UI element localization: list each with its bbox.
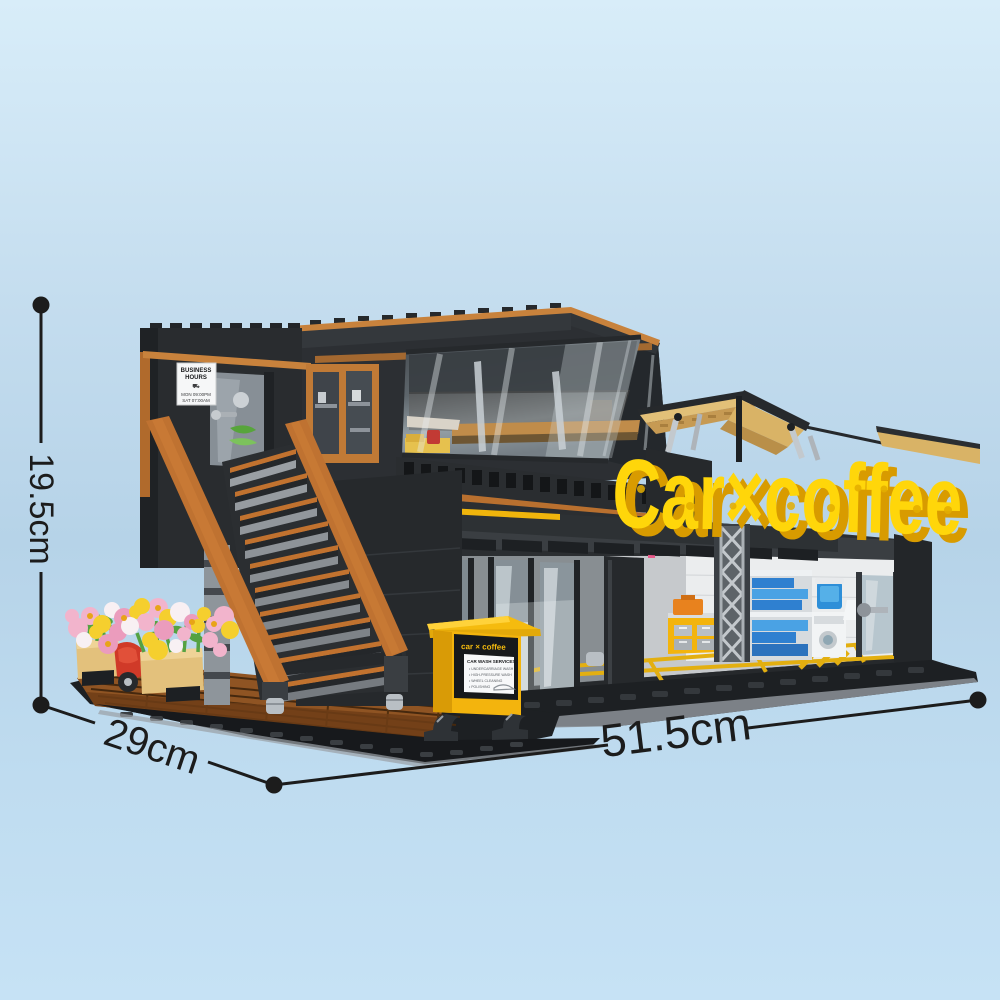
svg-text:Car×coffee: Car×coffee <box>611 438 963 555</box>
svg-text:⛟: ⛟ <box>192 384 200 390</box>
svg-text:HOURS: HOURS <box>185 375 207 381</box>
svg-text:• UNDERCARRIAGE WASH: • UNDERCARRIAGE WASH <box>469 667 514 671</box>
svg-text:BUSINESS: BUSINESS <box>181 368 212 374</box>
svg-text:• POLISHING: • POLISHING <box>469 685 491 689</box>
svg-text:19.5cm: 19.5cm <box>22 453 60 565</box>
svg-text:car × coffee: car × coffee <box>461 642 506 652</box>
svg-text:• WHEEL CLEANING: • WHEEL CLEANING <box>469 679 503 683</box>
svg-text:SAT 07:00AM: SAT 07:00AM <box>182 398 210 403</box>
svg-text:• HIGH-PRESSURE WASH: • HIGH-PRESSURE WASH <box>469 673 512 677</box>
svg-text:CAR WASH SERVICES: CAR WASH SERVICES <box>467 659 515 664</box>
svg-text:MON 09:00PM: MON 09:00PM <box>181 392 211 397</box>
